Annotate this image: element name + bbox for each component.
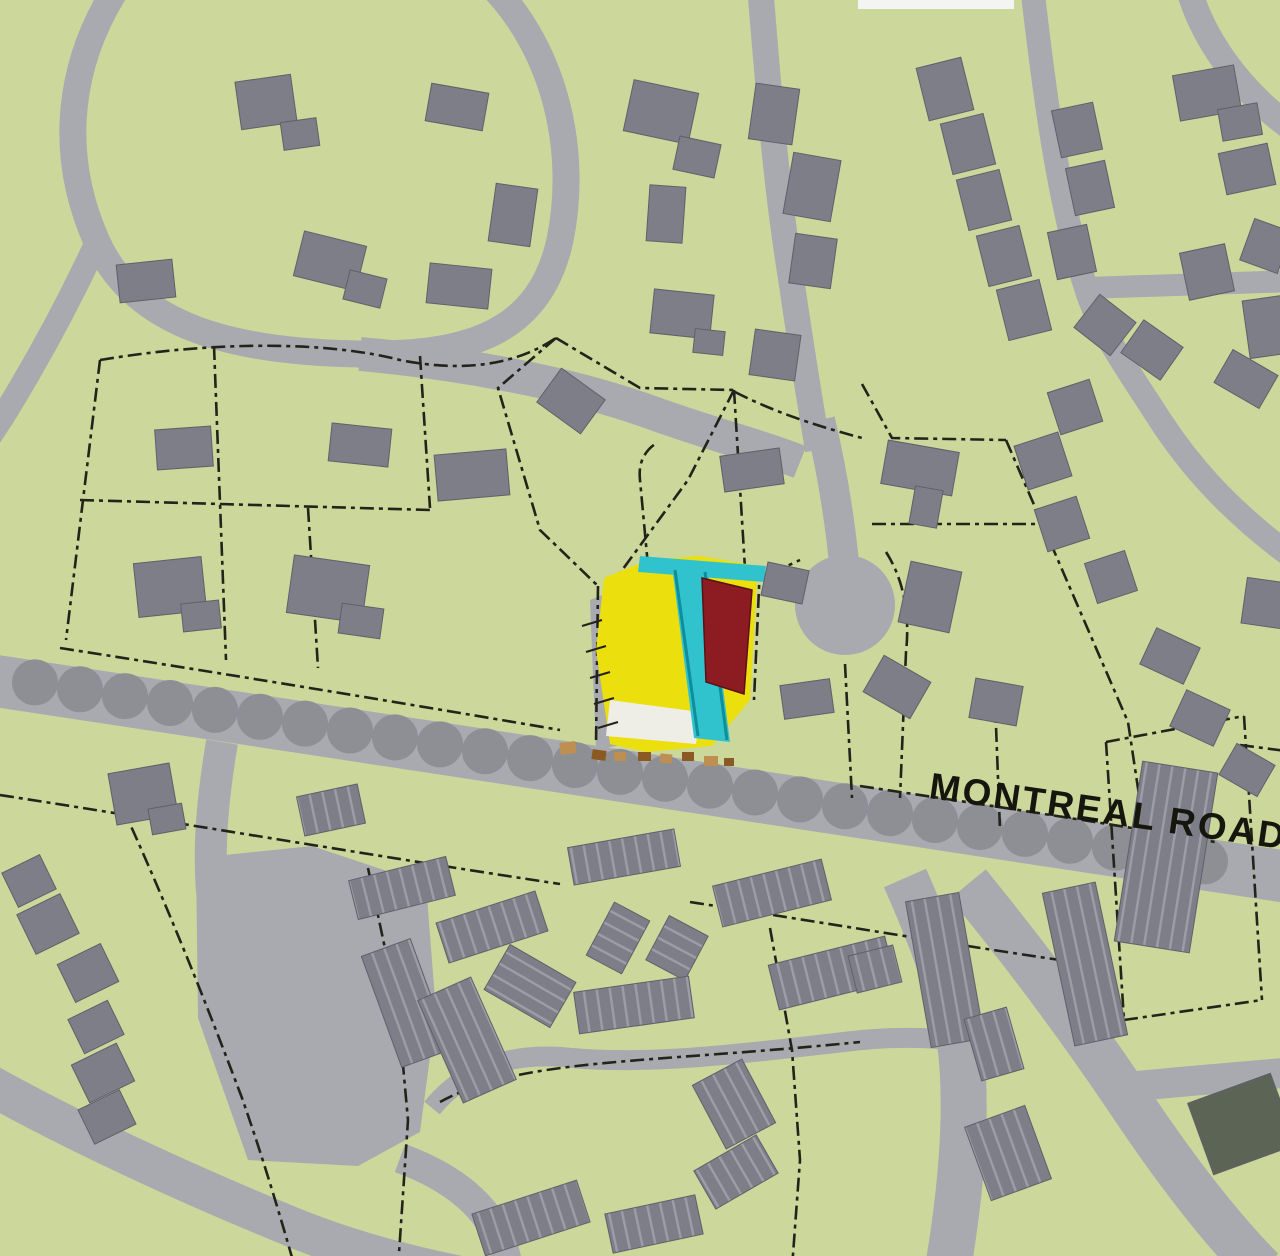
street-tree-icon (102, 673, 148, 719)
frontage-detail (682, 752, 694, 761)
house-footprint (280, 118, 320, 151)
frontage-detail (638, 752, 651, 761)
road (211, 742, 222, 892)
site-plan-map: MONTREAL ROAD (0, 0, 1280, 1256)
frontage-detail (559, 741, 577, 755)
street-tree-icon (282, 701, 328, 747)
house-footprint (748, 83, 799, 145)
street-tree-icon (867, 790, 913, 836)
street-tree-icon (192, 687, 238, 733)
frontage-detail (704, 756, 718, 766)
house-footprint (434, 449, 510, 501)
house-footprint (783, 152, 841, 221)
site-proposed-building (702, 578, 752, 694)
house-footprint (789, 233, 838, 288)
house-footprint (780, 679, 834, 720)
frontage-detail (614, 752, 626, 761)
street-tree-icon (507, 735, 553, 781)
house-footprint (338, 603, 384, 639)
street-tree-icon (327, 708, 373, 754)
house-footprint (488, 183, 538, 246)
street-tree-icon (147, 680, 193, 726)
street-tree-icon (777, 776, 823, 822)
house-footprint (909, 486, 943, 528)
house-footprint (181, 600, 222, 632)
street-tree-icon (12, 659, 58, 705)
house-footprint (646, 185, 686, 243)
frontage-detail (660, 753, 673, 763)
house-footprint (426, 263, 492, 309)
frontage-detail (724, 758, 734, 766)
house-footprint (155, 426, 214, 470)
street-tree-icon (687, 763, 733, 809)
house-footprint (1218, 103, 1263, 141)
site-plan-page: MONTREAL ROAD (0, 0, 1280, 1256)
street-tree-icon (417, 721, 463, 767)
street-tree-icon (462, 728, 508, 774)
house-footprint (148, 803, 186, 835)
house-footprint (328, 423, 392, 467)
house-footprint (1241, 577, 1280, 628)
house-footprint (693, 328, 725, 355)
street-tree-icon (822, 783, 868, 829)
edge-sliver (858, 0, 1014, 9)
street-tree-icon (57, 666, 103, 712)
house-footprint (969, 678, 1023, 726)
street-tree-icon (732, 770, 778, 816)
frontage-detail (591, 749, 606, 761)
street-tree-icon (237, 694, 283, 740)
road (1086, 281, 1280, 288)
cul-de-sac-bulb (795, 555, 895, 655)
street-tree-icon (372, 714, 418, 760)
house-footprint (116, 259, 176, 303)
house-footprint (1180, 244, 1235, 301)
house-footprint (720, 448, 784, 492)
house-footprint (749, 329, 801, 381)
